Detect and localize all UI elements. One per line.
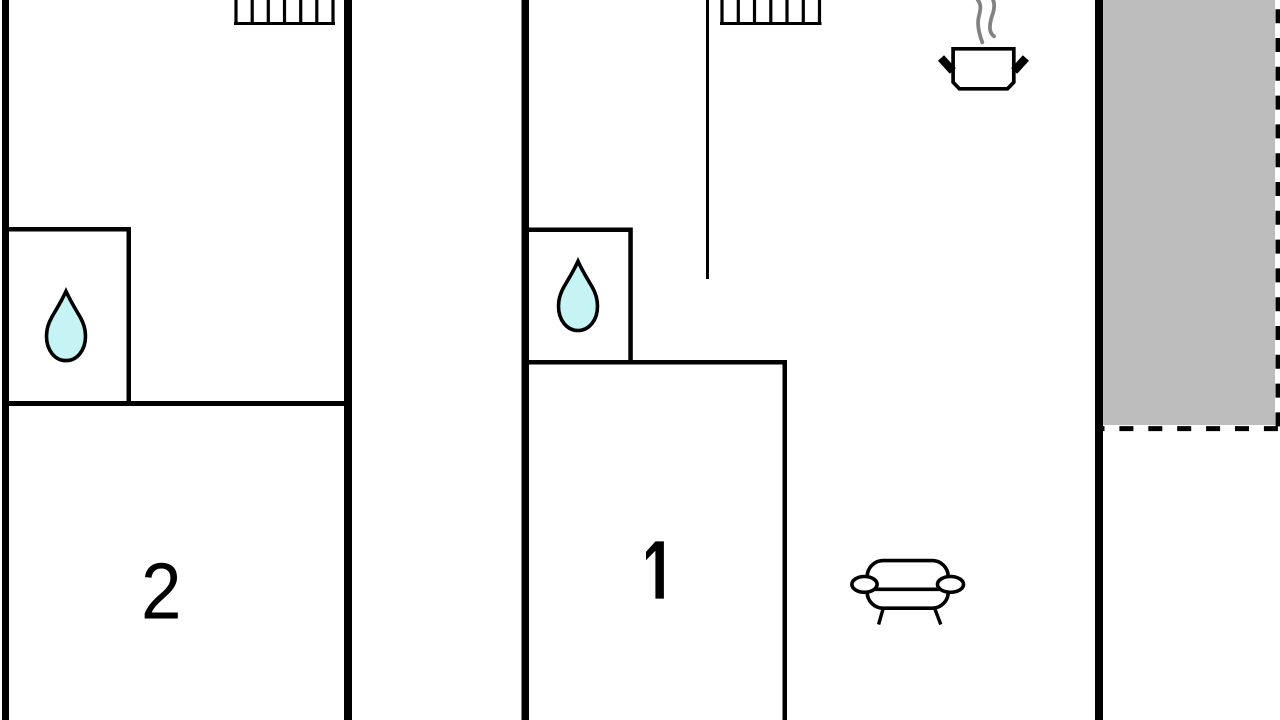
svg-text:2: 2 (141, 547, 181, 636)
